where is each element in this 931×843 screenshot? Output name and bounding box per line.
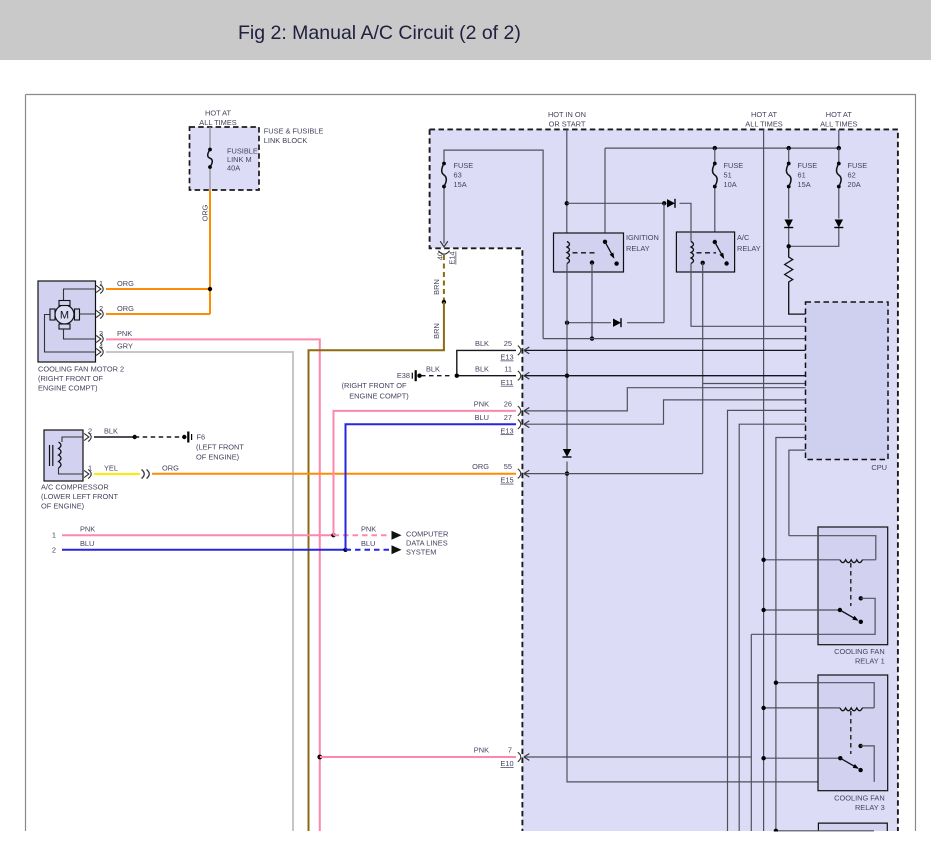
svg-text:E14: E14 (448, 251, 457, 264)
svg-text:BLK: BLK (475, 339, 489, 348)
svg-text:7: 7 (508, 746, 512, 755)
svg-text:2: 2 (88, 427, 92, 436)
svg-text:OF ENGINE): OF ENGINE) (196, 453, 239, 462)
svg-text:M: M (60, 310, 69, 322)
svg-text:COMPUTER: COMPUTER (406, 530, 448, 539)
svg-text:F6: F6 (197, 433, 206, 442)
svg-text:PNK: PNK (80, 525, 95, 534)
svg-text:COOLING FAN: COOLING FAN (834, 647, 885, 656)
svg-text:ORG: ORG (472, 462, 489, 471)
svg-text:HOT AT: HOT AT (826, 110, 852, 119)
svg-text:RELAY 3: RELAY 3 (855, 803, 885, 812)
svg-text:40A: 40A (227, 164, 240, 173)
svg-text:COOLING FAN: COOLING FAN (834, 794, 885, 803)
svg-text:BRN: BRN (432, 279, 441, 295)
svg-text:4: 4 (99, 342, 103, 351)
svg-text:2: 2 (99, 304, 103, 313)
svg-text:ORG: ORG (117, 304, 134, 313)
svg-text:E38: E38 (397, 371, 410, 380)
svg-text:RELAY: RELAY (626, 244, 650, 253)
svg-text:PNK: PNK (474, 746, 489, 755)
svg-text:DATA LINES: DATA LINES (406, 539, 448, 548)
svg-text:FUSE: FUSE (454, 161, 474, 170)
svg-text:IGNITION: IGNITION (626, 233, 659, 242)
svg-text:BLU: BLU (475, 413, 489, 422)
svg-text:ORG: ORG (117, 279, 134, 288)
svg-text:FUSE: FUSE (848, 161, 868, 170)
svg-text:FUSE: FUSE (798, 161, 818, 170)
svg-text:63: 63 (454, 171, 462, 180)
svg-text:(RIGHT FRONT OF: (RIGHT FRONT OF (341, 381, 406, 390)
svg-text:BLK: BLK (475, 364, 489, 373)
svg-text:ORG: ORG (201, 204, 210, 221)
svg-text:A/C: A/C (737, 233, 750, 242)
svg-text:RELAY 1: RELAY 1 (855, 657, 885, 666)
svg-text:PNK: PNK (474, 400, 489, 409)
svg-text:E11: E11 (501, 378, 514, 387)
svg-text:E15: E15 (500, 476, 513, 485)
svg-text:11: 11 (504, 364, 512, 373)
svg-text:15A: 15A (454, 180, 467, 189)
svg-text:SYSTEM: SYSTEM (406, 548, 436, 557)
svg-text:HOT AT: HOT AT (205, 109, 231, 118)
svg-text:3: 3 (99, 329, 103, 338)
svg-text:1: 1 (52, 531, 56, 540)
svg-text:ALL TIMES: ALL TIMES (820, 120, 857, 129)
svg-text:61: 61 (798, 171, 806, 180)
svg-text:51: 51 (724, 171, 732, 180)
svg-text:PNK: PNK (361, 525, 376, 534)
svg-text:BLK: BLK (426, 364, 440, 373)
svg-text:A/C COMPRESSOR: A/C COMPRESSOR (41, 483, 109, 492)
svg-text:20A: 20A (848, 180, 861, 189)
svg-text:2: 2 (52, 545, 56, 554)
svg-text:PNK: PNK (117, 329, 132, 338)
svg-text:BRN: BRN (432, 323, 441, 339)
svg-text:E13: E13 (500, 353, 513, 362)
svg-text:1: 1 (99, 279, 103, 288)
svg-text:(RIGHT FRONT OF: (RIGHT FRONT OF (38, 374, 103, 383)
svg-text:HOT IN ON: HOT IN ON (548, 110, 586, 119)
svg-text:OR START: OR START (549, 120, 586, 129)
svg-text:CPU: CPU (871, 463, 887, 472)
svg-text:E13: E13 (500, 426, 513, 435)
svg-text:ALL TIMES: ALL TIMES (199, 118, 236, 127)
svg-text:ENGINE COMPT): ENGINE COMPT) (38, 384, 98, 393)
svg-text:HOT AT: HOT AT (751, 110, 777, 119)
svg-text:FUSE: FUSE (724, 161, 744, 170)
svg-text:15A: 15A (798, 180, 811, 189)
svg-text:Fig 2: Manual A/C Circuit (2 o: Fig 2: Manual A/C Circuit (2 of 2) (238, 22, 521, 44)
svg-text:1: 1 (88, 464, 92, 473)
svg-text:RELAY: RELAY (737, 244, 761, 253)
svg-text:ORG: ORG (162, 464, 179, 473)
svg-text:ALL TIMES: ALL TIMES (745, 120, 782, 129)
svg-text:55: 55 (504, 462, 512, 471)
svg-text:BLK: BLK (104, 427, 118, 436)
svg-text:62: 62 (848, 171, 856, 180)
svg-text:ENGINE COMPT): ENGINE COMPT) (349, 392, 409, 401)
svg-text:FUSE & FUSIBLE: FUSE & FUSIBLE (264, 127, 324, 136)
svg-text:BLU: BLU (80, 539, 94, 548)
svg-text:COOLING FAN MOTOR 2: COOLING FAN MOTOR 2 (38, 365, 124, 374)
svg-text:LINK BLOCK: LINK BLOCK (264, 136, 308, 145)
svg-text:BLU: BLU (361, 539, 375, 548)
svg-text:(LEFT FRONT: (LEFT FRONT (196, 443, 244, 452)
svg-text:YEL: YEL (104, 464, 118, 473)
svg-text:25: 25 (504, 339, 512, 348)
svg-text:OF ENGINE): OF ENGINE) (41, 502, 84, 511)
svg-text:GRY: GRY (117, 342, 133, 351)
svg-text:10A: 10A (724, 180, 737, 189)
svg-text:26: 26 (504, 400, 512, 409)
svg-text:27: 27 (504, 413, 512, 422)
svg-text:E10: E10 (500, 759, 513, 768)
svg-text:(LOWER LEFT FRONT: (LOWER LEFT FRONT (41, 492, 119, 501)
